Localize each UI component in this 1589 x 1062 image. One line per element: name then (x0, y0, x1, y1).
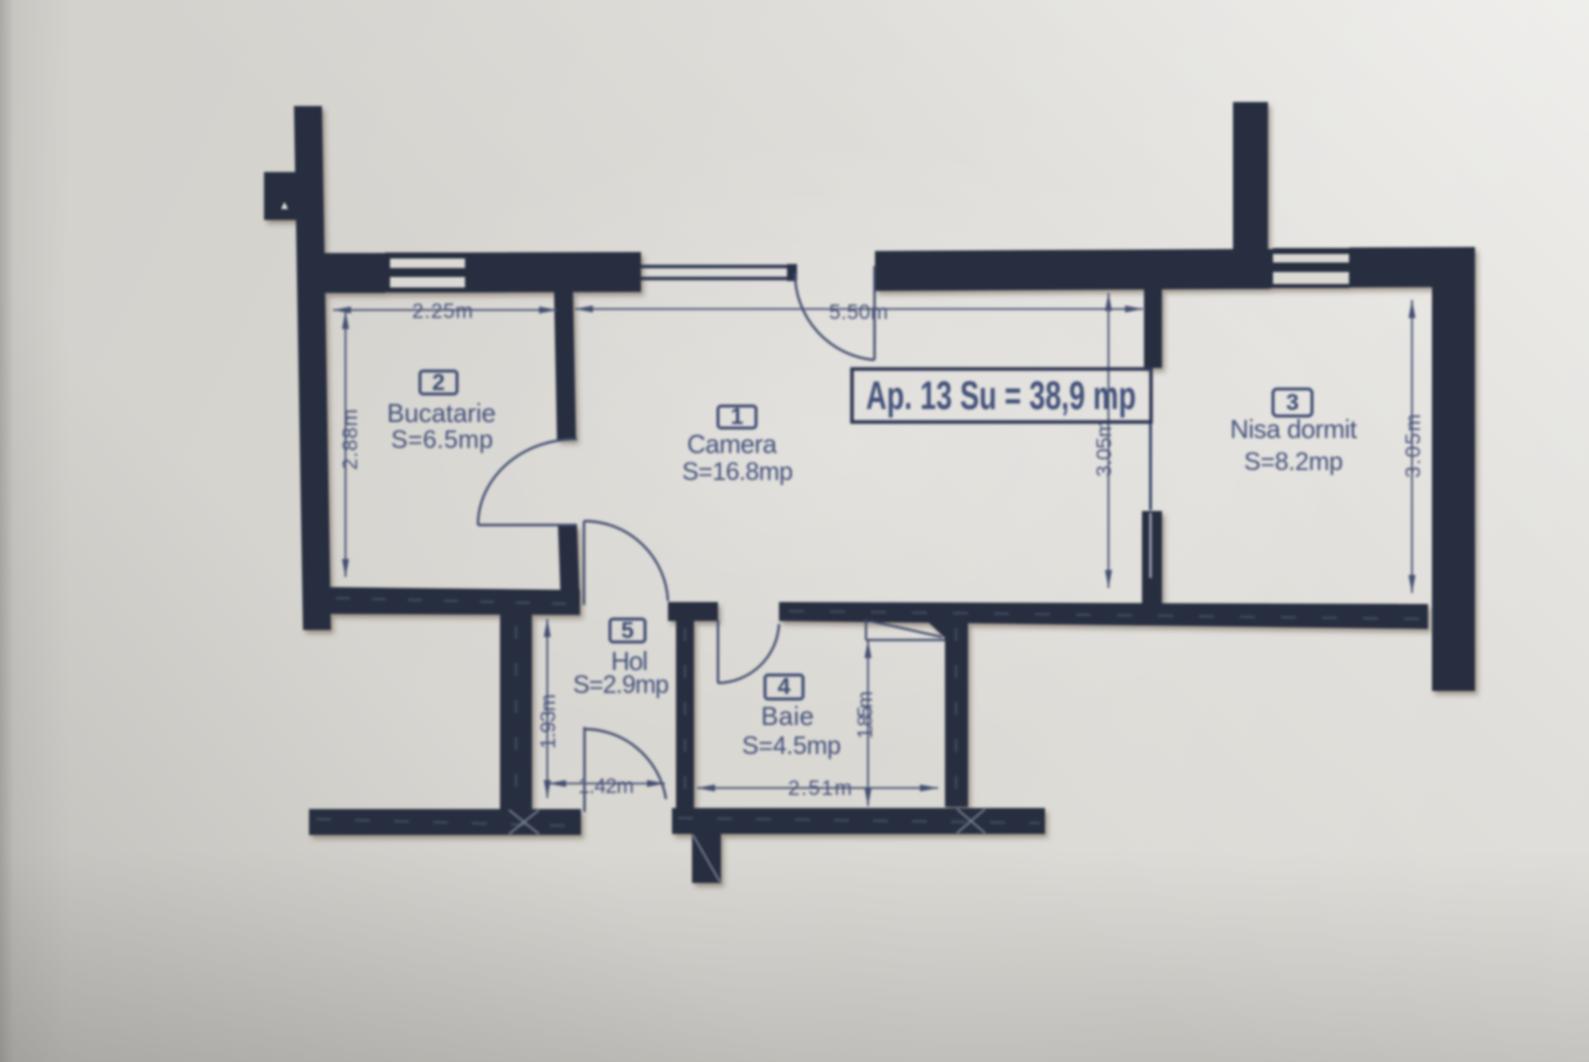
svg-text:3: 3 (1286, 389, 1299, 415)
svg-text:Bucatarie: Bucatarie (387, 398, 496, 428)
svg-text:3.05m: 3.05m (1402, 414, 1425, 478)
svg-text:5: 5 (621, 617, 634, 643)
svg-text:4: 4 (778, 673, 791, 699)
svg-text:Baie: Baie (761, 701, 814, 731)
svg-text:1.93m: 1.93m (537, 694, 560, 749)
svg-text:S=4.5mp: S=4.5mp (742, 732, 841, 760)
svg-text:1.85m: 1.85m (854, 691, 877, 739)
svg-text:2.88m: 2.88m (339, 409, 362, 470)
svg-text:Ap. 13 Su = 38,9 mp: Ap. 13 Su = 38,9 mp (866, 374, 1136, 418)
svg-text:S=2.9mp: S=2.9mp (573, 671, 669, 699)
svg-text:Nisa dormit: Nisa dormit (1230, 414, 1358, 444)
svg-text:1.42m: 1.42m (578, 775, 634, 798)
svg-text:S=6.5mp: S=6.5mp (391, 426, 493, 454)
svg-text:S=8.2mp: S=8.2mp (1244, 448, 1343, 476)
svg-text:1: 1 (731, 403, 744, 429)
svg-text:2: 2 (432, 369, 445, 395)
svg-text:2.51m: 2.51m (788, 777, 852, 800)
svg-text:2.25m: 2.25m (412, 300, 473, 323)
svg-text:Camera: Camera (687, 429, 778, 459)
svg-text:5.50m: 5.50m (829, 301, 888, 324)
svg-text:S=16.8mp: S=16.8mp (682, 458, 793, 486)
svg-text:3.05m: 3.05m (1093, 420, 1116, 477)
